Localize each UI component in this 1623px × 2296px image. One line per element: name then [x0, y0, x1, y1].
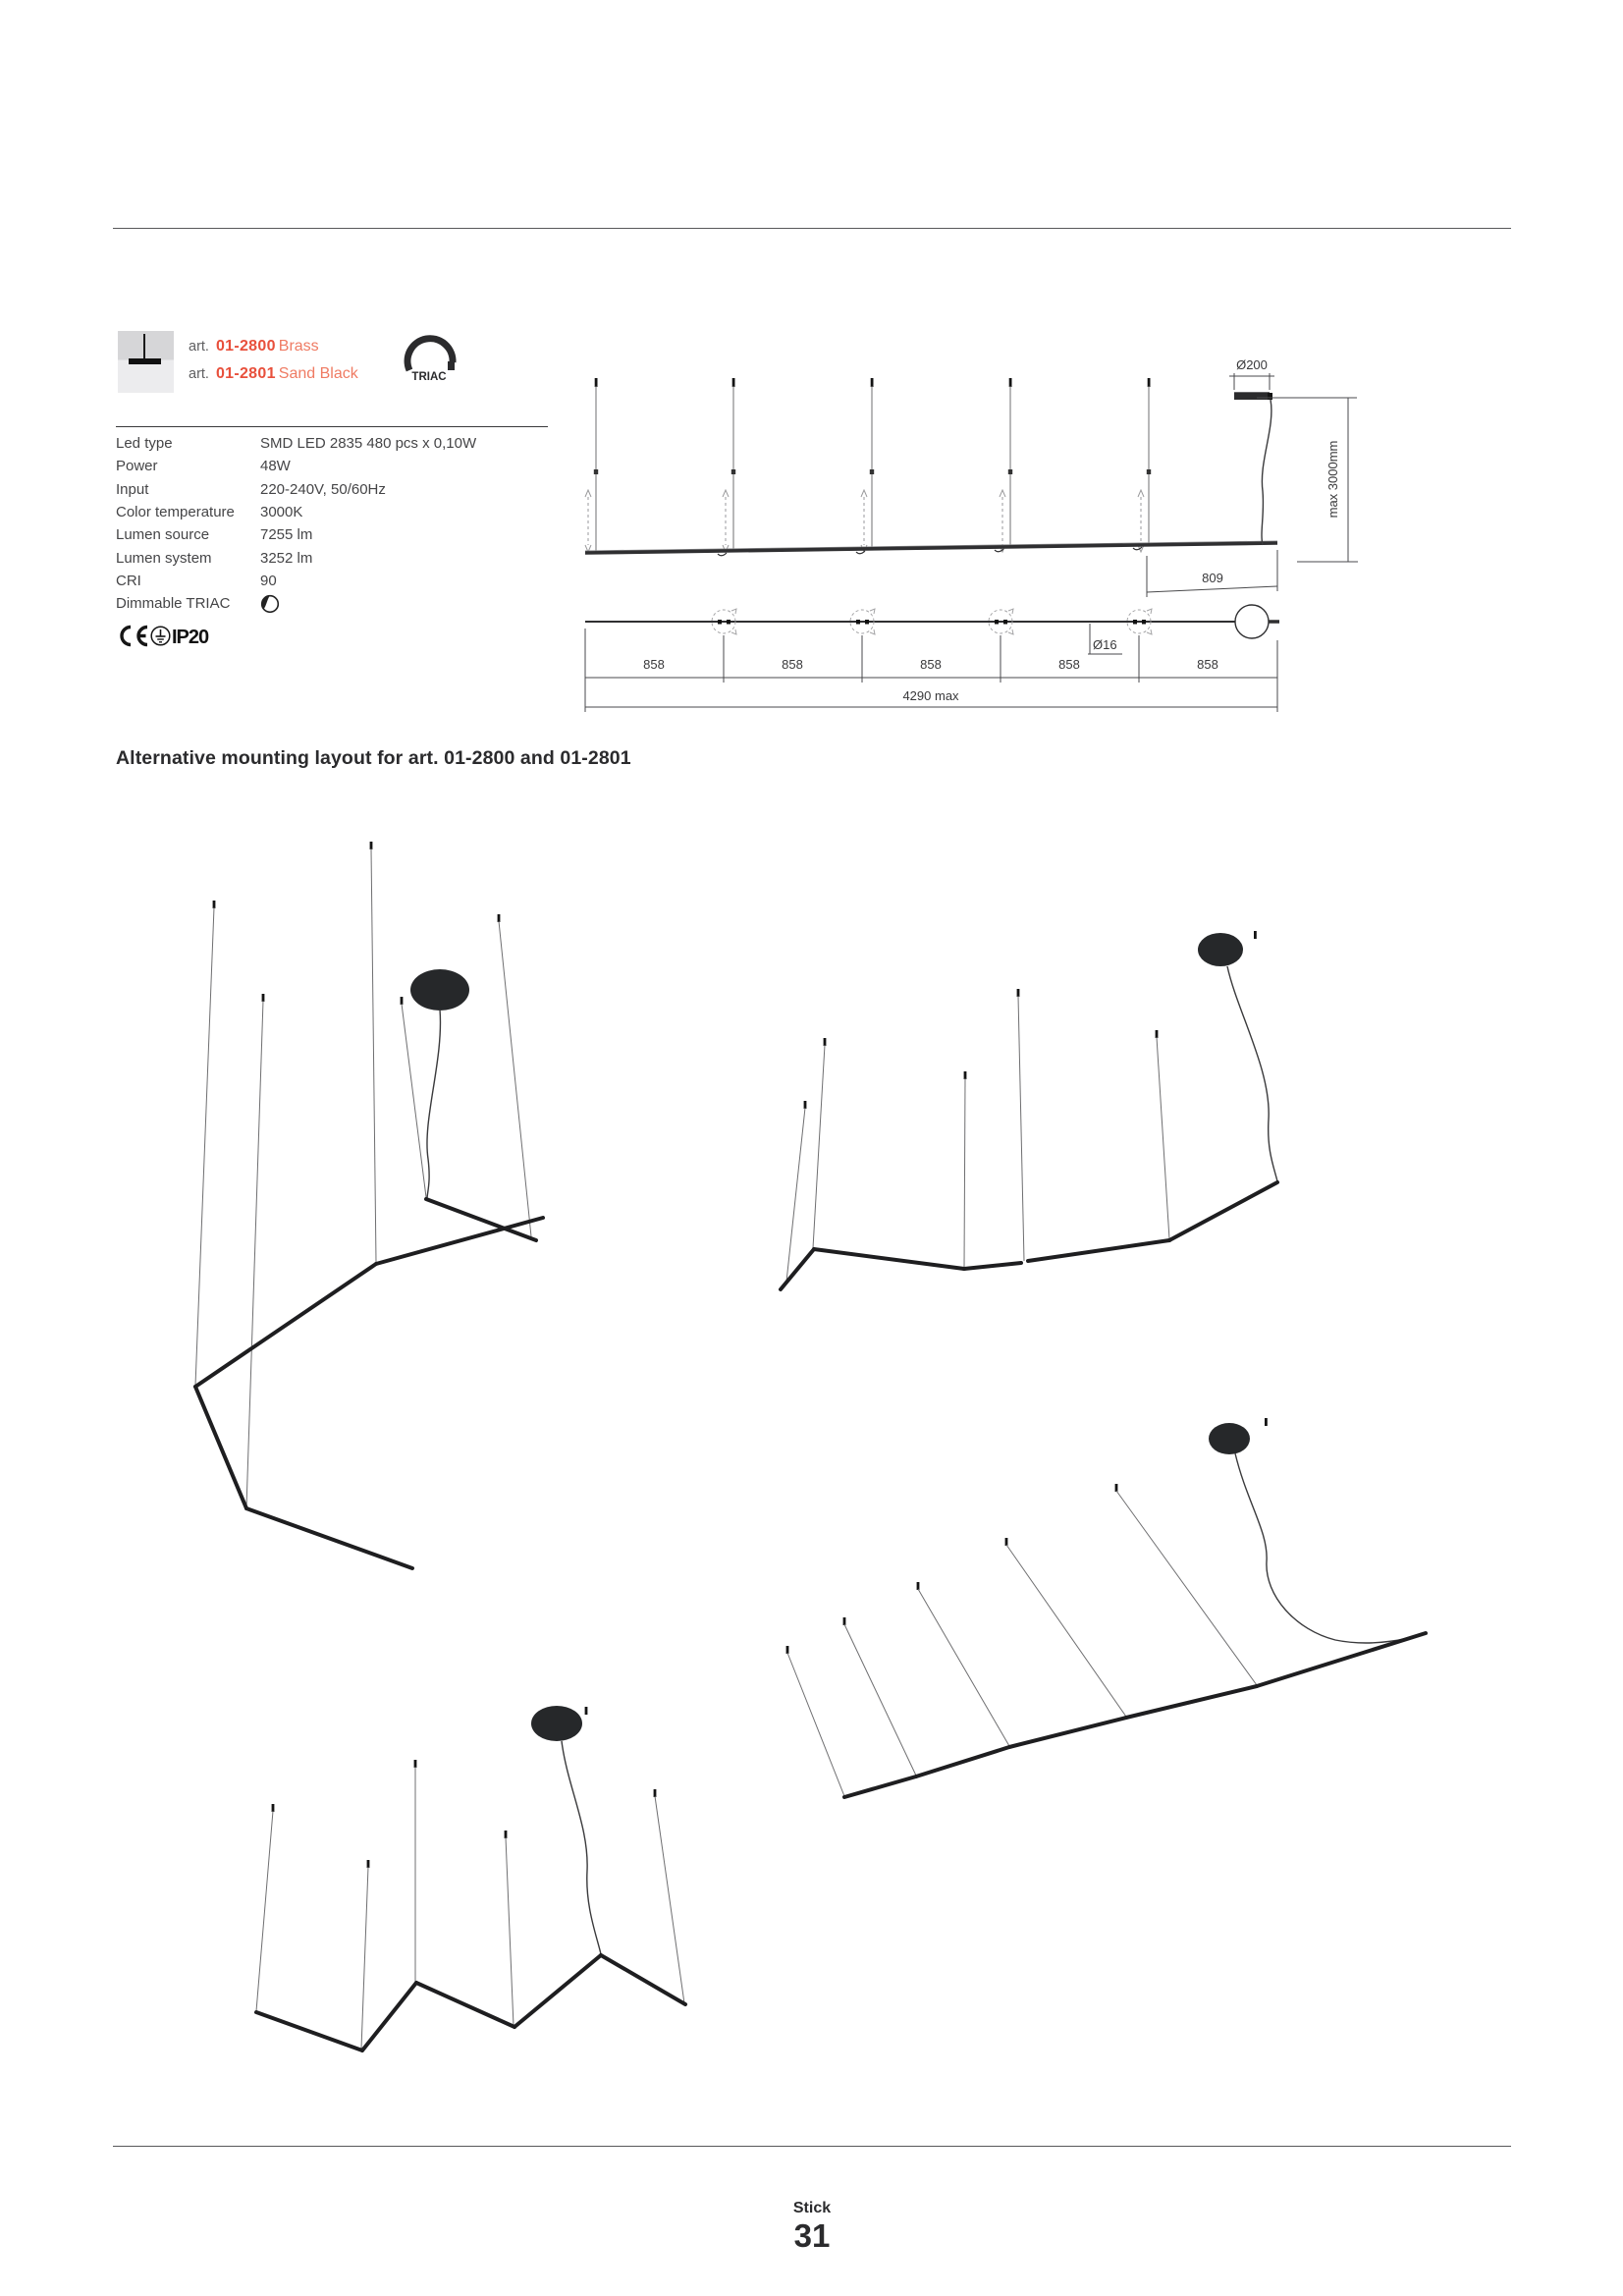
article-finish-2: Sand Black	[279, 365, 358, 382]
ip-rating-label: IP20	[172, 627, 209, 648]
power-cable	[1262, 400, 1271, 545]
footer-rule	[113, 2146, 1511, 2147]
dim-segment: 858	[643, 657, 665, 672]
dim-segment: 858	[1058, 657, 1080, 672]
footer-product-name: Stick	[714, 2200, 910, 2217]
layout-drawing-1	[195, 842, 543, 1568]
spec-table: Led typeSMD LED 2835 480 pcs x 0,10W Pow…	[116, 426, 548, 615]
ceiling-canopy	[410, 969, 469, 1011]
ceiling-canopy	[1209, 1423, 1250, 1454]
art-prefix-label: art.	[189, 339, 209, 355]
triac-badge: TRIAC	[403, 332, 460, 385]
ce-mark-icon	[122, 628, 147, 645]
article-finish-1: Brass	[279, 338, 319, 355]
article-code-1: 01-2800	[216, 338, 276, 355]
spec-row: Color temperature3000K	[116, 501, 548, 523]
dim-segment: 858	[782, 657, 803, 672]
triac-badge-label: TRIAC	[411, 371, 446, 383]
dim-canopy-diameter: Ø200	[1236, 357, 1268, 372]
dimmer-arc-icon	[407, 339, 453, 370]
ceiling-canopy	[1198, 933, 1243, 966]
spec-value: SMD LED 2835 480 pcs x 0,10W	[260, 435, 548, 452]
height-adjust-arrows	[585, 490, 1144, 552]
spec-label: Led type	[116, 435, 260, 452]
spec-label: Color temperature	[116, 504, 260, 520]
top-rule	[113, 228, 1511, 229]
power-cable	[562, 1741, 601, 1954]
technical-drawing: Ø200 max 3000mm 809	[569, 344, 1367, 729]
layout-drawing-2	[781, 931, 1277, 1289]
article-row-1: art.01-2800Brass	[189, 338, 319, 355]
class-earth-icon	[151, 627, 170, 645]
catalog-page: art.01-2800Brass art.01-2801Sand Black T…	[0, 0, 1623, 2296]
dim-segment: 858	[1197, 657, 1218, 672]
spec-row-dimmable: Dimmable TRIAC	[116, 592, 548, 615]
suspension-wires	[594, 378, 1151, 553]
power-cable	[427, 1010, 441, 1199]
layout-drawing-3	[786, 1418, 1426, 1797]
stick-chain-top-view	[585, 605, 1279, 638]
spec-row: Input220-240V, 50/60Hz	[116, 478, 548, 501]
article-row-2: art.01-2801Sand Black	[189, 365, 358, 383]
spec-row: CRI90	[116, 570, 548, 592]
dim-segment: 858	[920, 657, 942, 672]
mounting-layouts	[0, 805, 1623, 2141]
power-cable	[1235, 1453, 1426, 1643]
spec-row: Led typeSMD LED 2835 480 pcs x 0,10W	[116, 432, 548, 455]
pendant-mini-render-icon	[118, 331, 174, 393]
spec-value: 48W	[260, 458, 548, 474]
section-heading: Alternative mounting layout for art. 01-…	[116, 747, 631, 770]
spec-row: Lumen system3252 lm	[116, 546, 548, 569]
power-cable	[1227, 966, 1277, 1181]
spec-label: CRI	[116, 573, 260, 589]
dim-tube-diameter: Ø16	[1093, 637, 1117, 652]
article-code-2: 01-2801	[216, 365, 276, 382]
spec-label: Power	[116, 458, 260, 474]
certifications: IP20	[115, 623, 233, 650]
stick-chain-front	[585, 541, 1277, 556]
spec-label: Input	[116, 481, 260, 498]
dimension-max-drop	[1257, 398, 1358, 562]
dim-max-drop: max 3000mm	[1325, 441, 1340, 519]
layout-drawing-4	[256, 1706, 685, 2050]
dimension-canopy	[1229, 373, 1274, 390]
spec-label: Lumen system	[116, 550, 260, 567]
spec-value: 3252 lm	[260, 550, 548, 567]
footer-page-number: 31	[714, 2217, 910, 2255]
spec-value: 3000K	[260, 504, 548, 520]
dim-offset: 809	[1202, 571, 1223, 585]
spec-value: 220-240V, 50/60Hz	[260, 481, 548, 498]
dimmer-arc-tip	[448, 361, 455, 370]
spec-row: Lumen source7255 lm	[116, 523, 548, 546]
spec-value: 90	[260, 573, 548, 589]
dimmer-knob-icon	[260, 594, 548, 614]
ceiling-canopy-front	[1234, 392, 1272, 545]
art-prefix-label: art.	[189, 366, 209, 382]
dim-total: 4290 max	[902, 688, 959, 703]
spec-row: Power48W	[116, 455, 548, 477]
spec-label: Dimmable TRIAC	[116, 595, 260, 612]
ceiling-canopy	[531, 1706, 582, 1741]
spec-value: 7255 lm	[260, 526, 548, 543]
spec-label: Lumen source	[116, 526, 260, 543]
product-thumbnail	[118, 331, 174, 393]
canopy-top-view	[1235, 605, 1269, 638]
